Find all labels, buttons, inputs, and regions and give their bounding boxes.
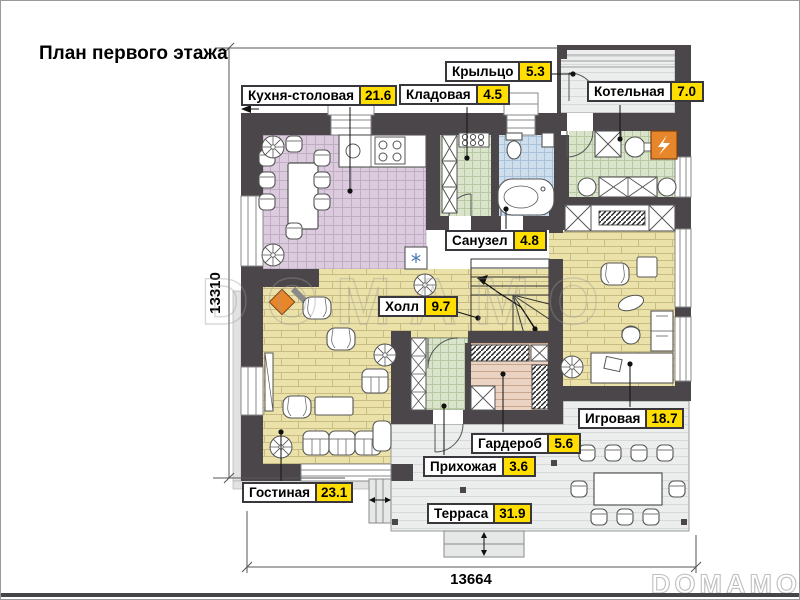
room-name: Санузел: [445, 230, 515, 251]
page-bottom-rule: [1, 593, 799, 597]
room-name: Кухня-столовая: [241, 85, 361, 106]
room-area-badge: 18.7: [645, 408, 683, 429]
room-area-badge: 4.8: [513, 230, 547, 251]
room-label-living: Гостиная 23.1: [242, 482, 353, 503]
room-area-badge: 5.6: [547, 433, 581, 454]
room-area-badge: 23.1: [315, 482, 353, 503]
dining-table: [288, 163, 318, 229]
room-name: Гостиная: [242, 482, 317, 503]
room-name: Гардероб: [471, 433, 549, 454]
room-area-badge: 4.5: [476, 84, 510, 105]
room-label-hall: Холл 9.7: [378, 296, 458, 317]
room-name: Котельная: [587, 81, 672, 102]
room-area-badge: 3.6: [502, 456, 536, 477]
floor-plan-page: 13310 13664 DOMAMO DOMAMO План первого э…: [0, 0, 800, 600]
room-area-badge: 9.7: [424, 296, 458, 317]
room-label-playroom: Игровая 18.7: [578, 408, 684, 429]
room-name: Прихожая: [423, 456, 504, 477]
room-area-badge: 7.0: [670, 81, 704, 102]
room-label-terrace: Терраса 31.9: [427, 503, 532, 524]
room-name: Кладовая: [399, 84, 478, 105]
room-label-pantry: Кладовая 4.5: [399, 84, 510, 105]
room-area-badge: 5.3: [518, 61, 552, 82]
page-title: План первого этажа: [39, 43, 228, 65]
room-label-boiler: Котельная 7.0: [587, 81, 704, 102]
room-label-bathroom: Санузел 4.8: [445, 230, 547, 251]
room-label-wardrobe: Гардероб 5.6: [471, 433, 581, 454]
room-label-entry: Прихожая 3.6: [423, 456, 536, 477]
room-label-kitchen-dining: Кухня-столовая 21.6: [241, 85, 397, 106]
room-name: Крыльцо: [445, 61, 520, 82]
room-area-badge: 31.9: [493, 503, 531, 524]
room-name: Холл: [378, 296, 426, 317]
room-area-badge: 21.6: [359, 85, 397, 106]
dimension-arrow: [241, 105, 251, 113]
room-entry-floor: [426, 338, 468, 410]
room-label-porch: Крыльцо 5.3: [445, 61, 552, 82]
room-name: Игровая: [578, 408, 647, 429]
desk: [591, 353, 673, 383]
terrace-table: [594, 473, 662, 505]
room-name: Терраса: [427, 503, 495, 524]
dimension-bottom-text: 13664: [450, 571, 492, 588]
